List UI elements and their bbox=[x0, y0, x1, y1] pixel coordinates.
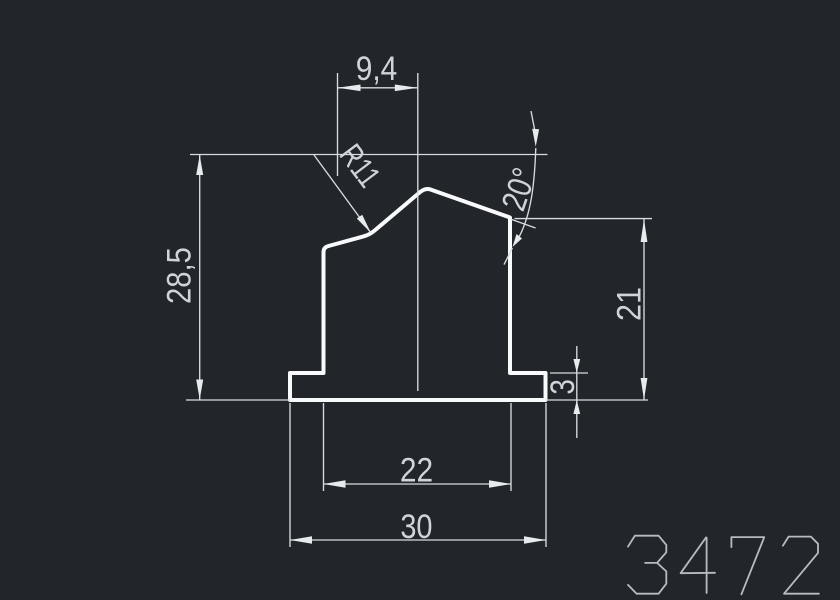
svg-text:3: 3 bbox=[543, 379, 581, 395]
svg-text:28,5: 28,5 bbox=[160, 247, 199, 304]
svg-text:21: 21 bbox=[610, 287, 648, 321]
svg-text:30: 30 bbox=[400, 507, 432, 546]
svg-text:22: 22 bbox=[400, 451, 433, 489]
svg-text:9,4: 9,4 bbox=[356, 49, 398, 87]
